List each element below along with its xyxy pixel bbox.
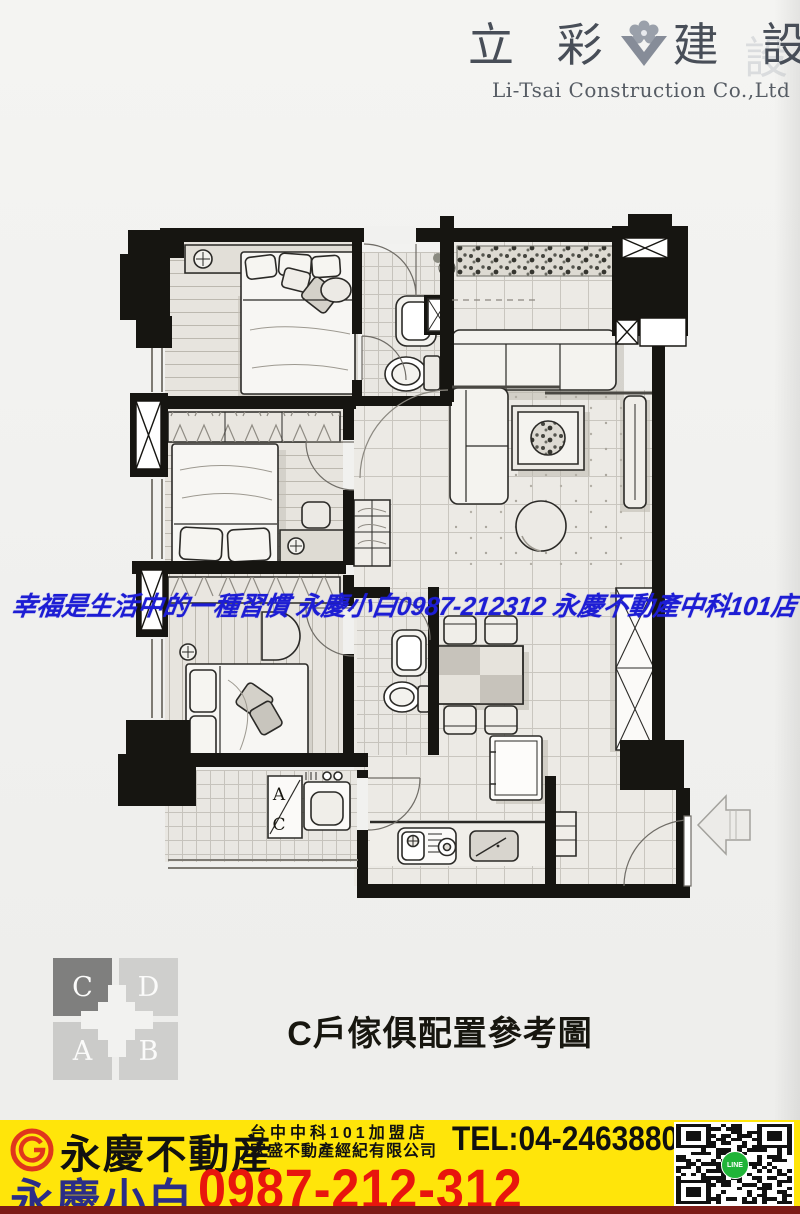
master-stool [321,278,351,302]
shoe-cabinet [554,812,576,856]
kitchen-counter [370,820,546,866]
ottoman [516,501,566,551]
banner-bottom-strip [0,1206,800,1214]
bedroom2-bed [172,444,286,564]
wall-bottom [357,884,690,898]
bedroom3-bed [186,664,312,762]
qr-code: LINE [674,1122,794,1206]
coffee-table [512,406,590,476]
cutting-board [470,831,518,861]
agent-watermark: 幸福是生活中的一種習慣 永慶小白0987-212312 永慶不動產中科101店 [9,586,779,623]
scanned-flyer-page: 立 彩 建 設 Li-Tsai Construction Co.,Ltd 設 [0,0,800,1214]
dining-table [437,646,529,710]
tv-console [620,396,650,512]
refrigerator [490,736,548,804]
store-branch: 台中中科101加盟店 [250,1125,437,1143]
bedroom2-wardrobe [168,412,340,442]
balcony-hedge [433,246,613,276]
master-bed [238,252,358,396]
ac-label-a: A [272,785,286,805]
ac-label-c: C [272,815,285,835]
store-tel: TEL:04-24638800 [452,1120,695,1159]
bedroom2-dresser [354,500,390,566]
wall-right [652,332,665,778]
line-badge: LINE [721,1151,749,1179]
entrance-arrow-icon [698,796,750,854]
agency-banner: 永慶不動産 台中中科101加盟店 家盛不動產經紀有限公司 TEL:04-2463… [0,1120,800,1214]
